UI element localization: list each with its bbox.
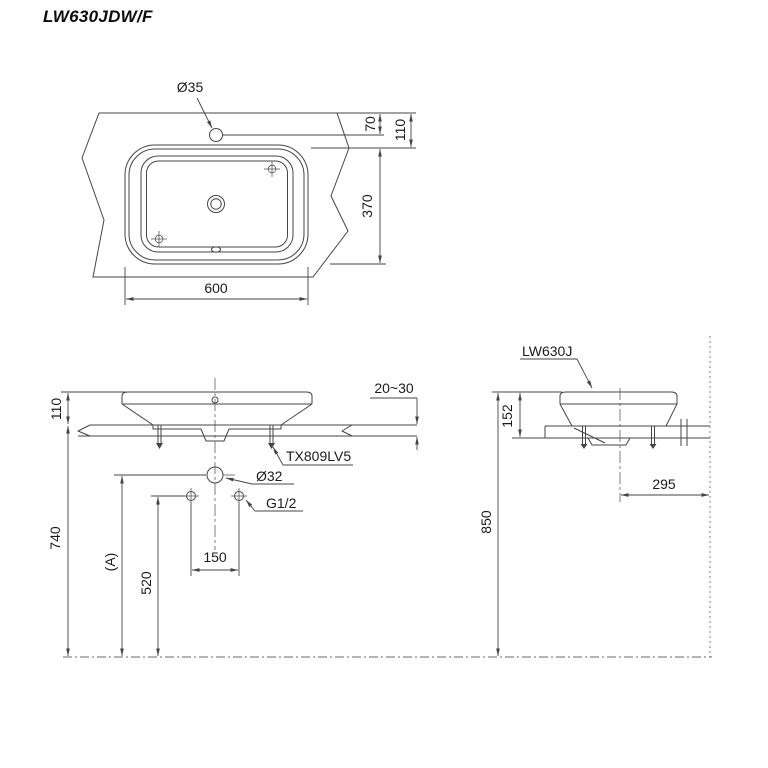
basin-profile-side	[560, 392, 677, 404]
front-view: 20~30 110 740 (A) 520 150	[47, 378, 417, 656]
dim-a: (A)	[102, 553, 118, 572]
drain-inner-circle	[211, 199, 221, 209]
installation-drawing: LW630JDW/F Ø35	[0, 0, 768, 768]
dim-drain-wall-offset: 295	[652, 476, 676, 492]
supply-hole	[231, 488, 247, 504]
dim-basin-setback: 110	[392, 119, 408, 142]
dim-basin-width: 600	[204, 280, 228, 296]
bowl-edge-outer	[141, 156, 293, 252]
overflow-slot	[212, 247, 221, 252]
faucet-hole	[210, 129, 223, 142]
drain-dia-label: Ø32	[256, 468, 283, 484]
drain-trough	[588, 438, 630, 445]
dim-supply-spacing: 150	[203, 549, 227, 565]
dim-basin-depth: 370	[359, 194, 375, 218]
model-label: LW630J	[522, 343, 572, 359]
basin-rim-inner	[129, 149, 304, 260]
dim-counter-height: 740	[47, 526, 63, 550]
dim-faucet-offset: 70	[362, 116, 378, 132]
side-view: LW630J 152 850 295	[478, 336, 710, 657]
drawing-title: LW630JDW/F	[43, 7, 153, 26]
target-mark	[151, 231, 167, 247]
bowl-edge-inner	[147, 161, 288, 247]
break-mark	[78, 425, 90, 436]
break-mark	[342, 425, 352, 436]
dim-rim-floor-height: 850	[478, 510, 494, 534]
dim-counter-thickness: 20~30	[374, 380, 414, 396]
dim-rim-drop: 152	[499, 404, 515, 428]
bowl-underside	[153, 425, 281, 441]
faucet-hole-dia-label: Ø35	[177, 79, 204, 95]
dim-supply-height: 520	[138, 571, 154, 595]
installation-drawing-page: LW630JDW/F Ø35	[0, 0, 768, 768]
supply-thread-label: G1/2	[266, 495, 297, 511]
drain-outer-circle	[208, 196, 225, 213]
fitting-model-label: TX809LV5	[286, 448, 351, 464]
supply-hole	[183, 488, 199, 504]
top-view: Ø35 70 110 370 600	[82, 79, 416, 305]
target-mark	[264, 161, 280, 177]
dim-rim-above-counter: 110	[48, 398, 64, 421]
